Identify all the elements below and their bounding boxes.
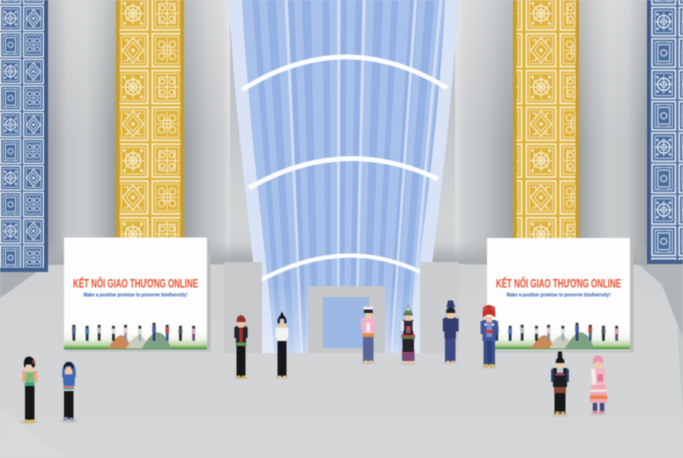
svg-text:Make a positive promise to pre: Make a positive promise to preserve biod… (507, 293, 611, 299)
svg-text:KẾT NỐI GIAO THƯƠNG ONLINE: KẾT NỐI GIAO THƯƠNG ONLINE (73, 277, 198, 291)
svg-text:Make a positive promise to pre: Make a positive promise to preserve biod… (84, 293, 188, 299)
svg-text:KẾT NỐI GIAO THƯƠNG ONLINE: KẾT NỐI GIAO THƯƠNG ONLINE (496, 277, 621, 291)
